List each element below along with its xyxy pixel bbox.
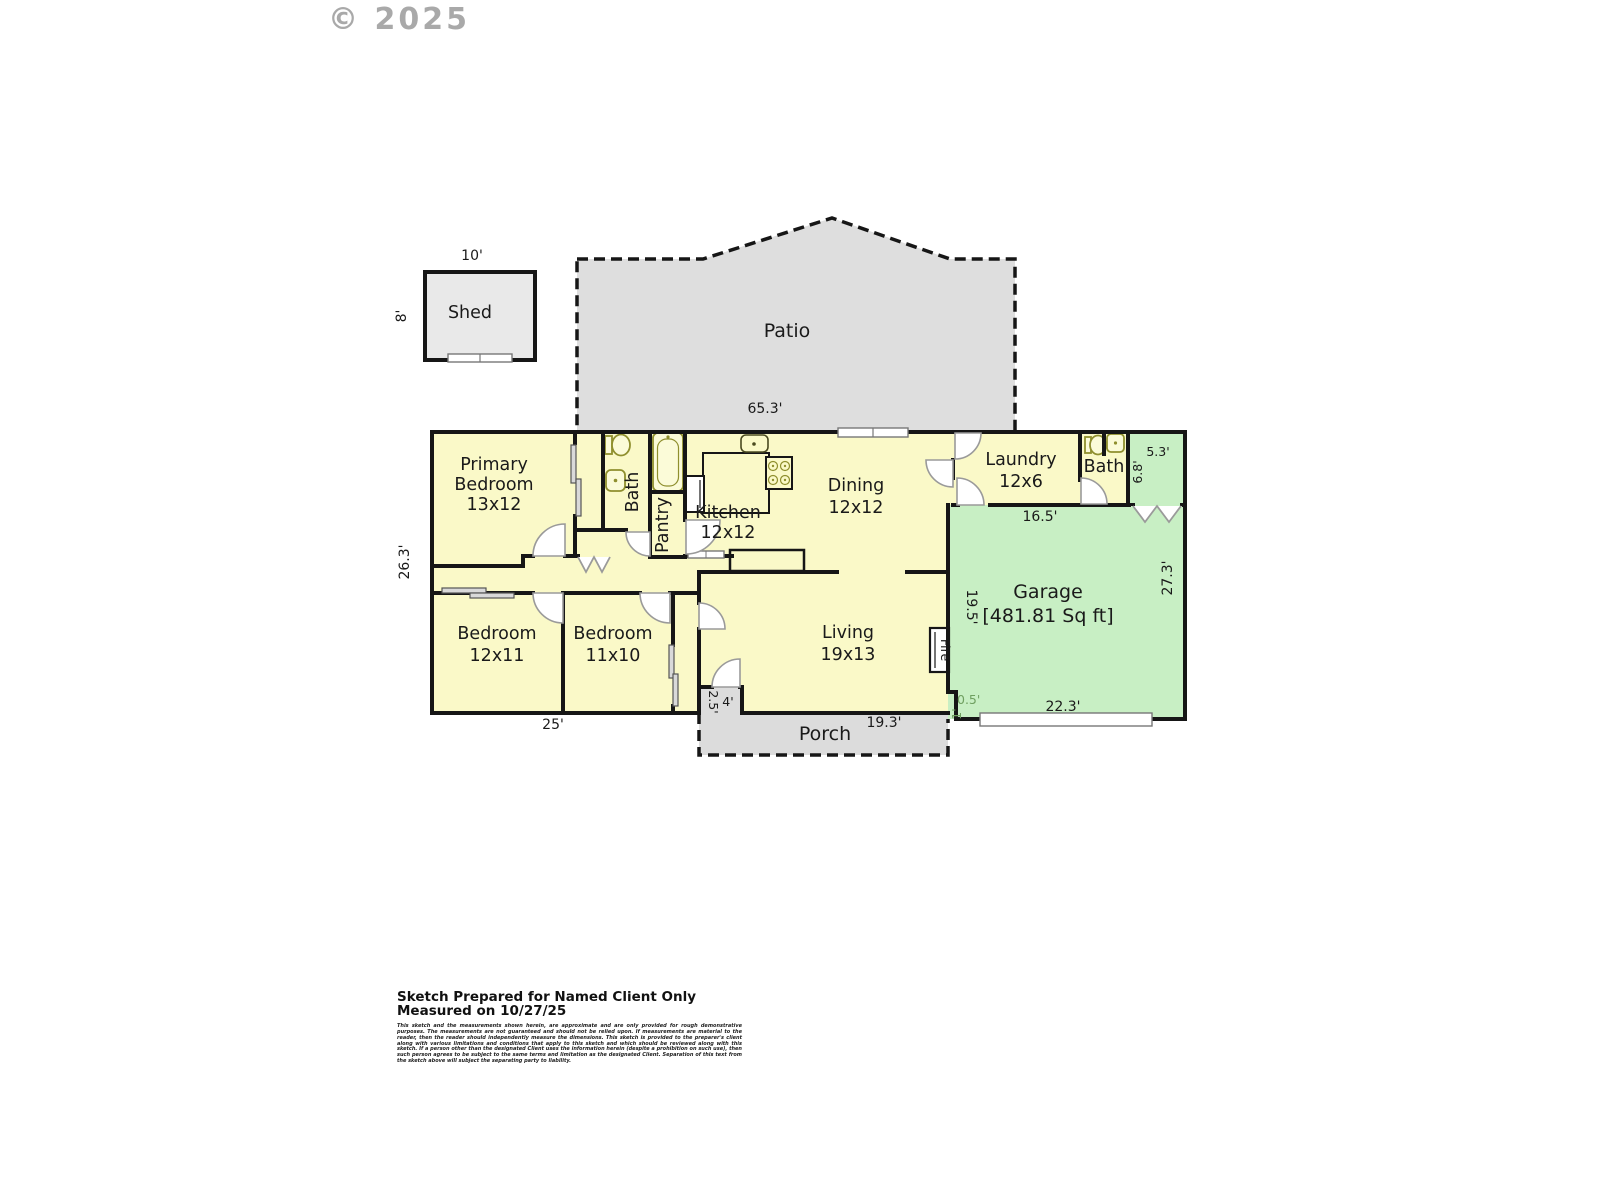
kitchen-dim: 12x12 — [701, 523, 756, 543]
footer-prepared-line: Sketch Prepared for Named Client Only — [397, 990, 742, 1004]
patio-label: Patio — [764, 320, 811, 342]
floor-plan-drawing: 10' 8' Shed Patio 65.3' 26.3' 25' Primar… — [0, 0, 1600, 1200]
garage-bottom-dim: 22.3' — [1045, 699, 1080, 715]
bedroom3-label: Bedroom — [573, 624, 652, 644]
entry-depth-dim: 2.5' — [706, 690, 721, 713]
garage-jog-a-dim: 0.5' — [957, 692, 980, 707]
primary-bedroom-label-2: Bedroom — [454, 475, 533, 495]
porch-bottom-dim: 19.3' — [866, 715, 901, 731]
footer-measured-line: Measured on 10/27/25 — [397, 1004, 742, 1018]
dining-label: Dining — [828, 476, 885, 496]
shed-width-dim: 10' — [461, 248, 483, 264]
footer: Sketch Prepared for Named Client Only Me… — [397, 990, 742, 1065]
bedroom2-label: Bedroom — [457, 624, 536, 644]
garage-area-label: [481.81 Sq ft] — [982, 605, 1113, 627]
pantry-label: Pantry — [653, 497, 673, 553]
footer-disclaimer: This sketch and the measurements shown h… — [397, 1024, 742, 1064]
floor-plan-page: © 2025 — [0, 0, 1600, 1200]
bathtub-icon — [653, 433, 683, 491]
kitchen-island — [730, 550, 804, 571]
garage-label: Garage — [1013, 581, 1083, 603]
dining-dim: 12x12 — [829, 498, 884, 518]
bath2-label: Bath — [1084, 457, 1125, 477]
living-dim: 19x13 — [821, 645, 876, 665]
entry-width-dim: 4' — [722, 694, 733, 709]
laundry-dim: 12x6 — [999, 472, 1043, 492]
shed-label: Shed — [448, 303, 492, 323]
kitchen-label: Kitchen — [695, 503, 761, 523]
shed-window — [448, 354, 512, 362]
dining-window — [838, 428, 908, 437]
fireplace-label: Fire — [938, 639, 953, 662]
porch-label: Porch — [799, 723, 851, 745]
house-left-dim: 26.3' — [397, 544, 413, 579]
primary-bedroom-dim: 13x12 — [467, 495, 522, 515]
garage-right-dim: 27.3' — [1160, 560, 1176, 595]
shed-height-dim: 8' — [394, 310, 410, 323]
bedroom3-dim: 11x10 — [586, 646, 641, 666]
kitchen-sink-icon — [741, 435, 768, 452]
garage-bifold-door — [1131, 506, 1182, 522]
bedroom2-dim: 12x11 — [470, 646, 525, 666]
garage-left-dim: 19.5' — [963, 589, 979, 624]
garage-top-dim: 16.5' — [1022, 509, 1057, 525]
living-label: Living — [822, 623, 874, 643]
primary-bedroom-label-1: Primary — [460, 455, 528, 475]
bedrooms-bottom-dim: 25' — [542, 717, 564, 733]
house-top-dim: 65.3' — [747, 401, 782, 417]
stove-icon — [766, 457, 792, 489]
garage-jog-b-dim: 1' — [949, 708, 964, 719]
notch-side-dim: 6.8' — [1130, 460, 1145, 483]
bath1-label: Bath — [623, 472, 643, 513]
toilet-icon — [605, 435, 630, 456]
bathroom-sink-icon — [1107, 434, 1124, 452]
laundry-label: Laundry — [985, 450, 1056, 470]
notch-top-dim: 5.3' — [1146, 444, 1169, 459]
